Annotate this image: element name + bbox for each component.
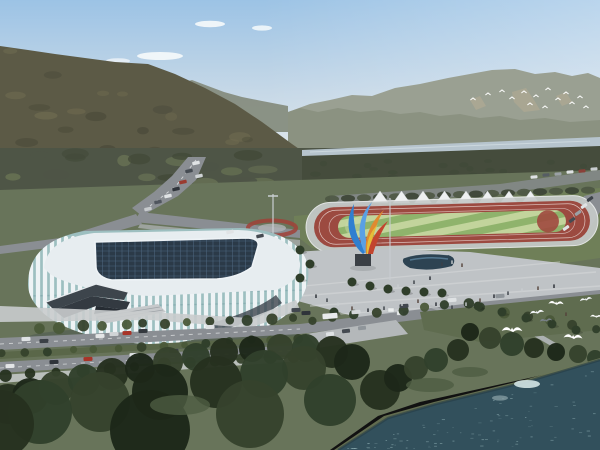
ripple (511, 418, 513, 419)
street-tree (420, 303, 429, 312)
ripple (397, 433, 399, 434)
person (537, 286, 538, 290)
ripple (480, 446, 483, 447)
forest-canopy (569, 345, 587, 363)
orchard-tree (364, 163, 372, 168)
ripple (374, 447, 376, 448)
plaza-tree (522, 314, 531, 323)
orchard-tree (485, 168, 494, 172)
street-tree (89, 345, 97, 353)
ripple (434, 446, 437, 447)
person (337, 302, 338, 306)
plaza-tree (420, 288, 429, 297)
ripple (534, 392, 537, 393)
car (358, 326, 366, 331)
tree-clump (34, 112, 57, 120)
person (565, 312, 566, 316)
ripple (460, 432, 461, 433)
tree-clump (248, 165, 278, 173)
sculpture-pedestal (355, 254, 371, 266)
car (122, 331, 131, 335)
ripple (442, 419, 445, 420)
plaza-tree (438, 289, 447, 298)
ripple (512, 446, 514, 447)
orchard-tree (439, 163, 448, 168)
ripple (498, 418, 501, 419)
plaza-tree (296, 274, 305, 283)
person (521, 288, 522, 292)
stadium-roof-glass (95, 238, 258, 280)
street-tree (183, 318, 191, 326)
backdrop-tree (565, 187, 579, 194)
person (417, 299, 418, 303)
car (21, 337, 30, 341)
ripple (387, 448, 390, 449)
screenshot-root (0, 0, 600, 450)
street-tree (242, 315, 253, 326)
street-tree (137, 342, 147, 352)
car (554, 172, 561, 176)
tree-clump (31, 151, 49, 158)
plaza-tree (474, 302, 483, 311)
ripple (406, 440, 408, 441)
ripple (515, 444, 518, 445)
tree-clump (128, 154, 150, 165)
ripple (452, 441, 454, 442)
forest-clearing (150, 395, 210, 415)
tree-clump (117, 92, 128, 97)
plaza-tree (306, 260, 315, 269)
ripple (550, 440, 553, 441)
ripple (528, 426, 531, 427)
plaza-tree (296, 246, 305, 255)
ripple (531, 425, 533, 426)
ripple (406, 448, 408, 449)
car (542, 173, 549, 177)
ripple (572, 418, 575, 419)
ripple (428, 446, 429, 447)
ripple (588, 436, 591, 437)
stadium-aerial-rendering (0, 0, 600, 450)
ripple (497, 440, 499, 441)
person (326, 298, 327, 302)
orchard-tree (352, 174, 362, 179)
tree-clump (5, 173, 20, 180)
tree-clump (97, 91, 109, 96)
orchard-tree (369, 167, 378, 171)
street-tree (205, 317, 214, 326)
ripple (554, 406, 557, 407)
ripple (551, 384, 554, 385)
forest-canopy (461, 323, 479, 341)
car (326, 332, 334, 337)
ripple (347, 448, 349, 449)
car (495, 294, 504, 299)
forest-canopy (447, 339, 469, 361)
ripple (528, 411, 530, 412)
tree-clump (67, 108, 86, 114)
street-tree (97, 321, 107, 331)
orchard-tree (580, 164, 587, 169)
car (322, 313, 337, 320)
tree-clump (221, 167, 242, 175)
car (530, 175, 537, 179)
street-tree (138, 319, 147, 328)
person (351, 306, 352, 310)
forest-canopy (304, 374, 356, 426)
tree-clump (242, 137, 253, 143)
forest-canopy (547, 343, 565, 361)
street-tree (20, 348, 29, 357)
orchard-tree (449, 170, 459, 175)
person (451, 260, 452, 264)
tree-clump (85, 112, 106, 121)
tree-clump (172, 128, 194, 135)
car (5, 364, 14, 368)
person (451, 305, 452, 309)
person (315, 294, 316, 298)
cloud (195, 21, 225, 27)
street-tree (34, 323, 45, 334)
tree-clump (165, 112, 177, 120)
street-tree (464, 298, 474, 308)
ripple (422, 425, 424, 426)
ripple (386, 440, 387, 441)
orchard-tree (459, 162, 468, 167)
ripple (591, 371, 594, 372)
orchard-tree (547, 160, 555, 165)
forest-canopy (524, 338, 544, 358)
orchard-tree (388, 171, 398, 175)
ripple (525, 417, 526, 418)
tree-clump (44, 71, 62, 79)
forest-canopy (479, 327, 501, 349)
plaza-tree (498, 308, 507, 317)
ripple (440, 443, 442, 444)
tree-clump (3, 48, 17, 54)
ripple (498, 415, 500, 416)
orchard-tree (384, 159, 392, 163)
car (566, 170, 573, 174)
backdrop-tree (533, 188, 547, 195)
tree-clump (28, 104, 50, 111)
street-tree (308, 317, 316, 325)
ripple (493, 400, 495, 401)
plaza-tree (548, 320, 557, 329)
ripple (447, 432, 448, 433)
street-tree (78, 320, 90, 332)
water-shine-small (492, 395, 508, 400)
ripple (354, 448, 356, 449)
tree-clump (137, 127, 149, 134)
ripple (573, 405, 576, 406)
ripple (391, 444, 393, 445)
street-tree (70, 346, 77, 353)
street-tree (289, 314, 297, 322)
ripple (571, 429, 573, 430)
street-tree (53, 322, 65, 334)
street-tree (160, 319, 170, 329)
forest-canopy (500, 332, 524, 356)
person (383, 306, 384, 310)
ripple (478, 422, 481, 423)
person (429, 276, 430, 280)
orchard-tree (499, 169, 507, 174)
car (399, 304, 408, 309)
tree-clump (65, 153, 86, 161)
orchard-tree (310, 171, 321, 176)
ripple (413, 448, 415, 449)
tree-clump (138, 174, 155, 182)
street-tree (266, 314, 277, 325)
ripple (497, 441, 499, 442)
ripple (452, 427, 454, 428)
ripple (493, 431, 495, 432)
ripple (374, 443, 377, 444)
orchard-tree (466, 166, 473, 171)
car (49, 360, 58, 364)
person (479, 298, 480, 302)
car (590, 167, 597, 171)
person (493, 294, 494, 298)
ripple (399, 441, 402, 442)
forest-clearing (406, 378, 454, 392)
car (351, 310, 360, 315)
ripple (437, 423, 440, 424)
water-shine (514, 380, 540, 388)
cloud (137, 52, 183, 60)
ripple (471, 434, 474, 435)
car (301, 311, 310, 315)
ripple (490, 421, 493, 422)
cloud (252, 25, 272, 30)
person (441, 262, 442, 266)
plaza-tree (402, 287, 411, 296)
ripple (470, 438, 473, 439)
orchard-tree (320, 161, 327, 167)
ripple (351, 448, 353, 449)
ripple (394, 445, 396, 446)
ripple (572, 402, 575, 403)
person (413, 280, 414, 284)
ripple (550, 426, 553, 427)
car (39, 339, 48, 343)
ripple (485, 439, 488, 440)
person (553, 284, 554, 288)
person (461, 263, 462, 267)
ripple (393, 434, 394, 435)
ripple (530, 437, 532, 438)
car (95, 334, 104, 338)
ripple (530, 406, 532, 407)
kiosk (388, 308, 394, 312)
car (83, 357, 92, 361)
ripple (587, 431, 590, 432)
ripple (529, 420, 532, 421)
ripple (428, 447, 431, 448)
ripple (516, 441, 518, 442)
car (578, 169, 585, 173)
street-tree (43, 347, 52, 356)
ripple (437, 430, 438, 431)
ripple (520, 437, 522, 438)
car (138, 329, 147, 333)
ripple (512, 394, 514, 395)
forest-canopy (424, 348, 448, 372)
plaza-tree (366, 282, 375, 291)
backdrop-tree (549, 188, 563, 195)
ripple (393, 438, 396, 439)
ripple (554, 437, 556, 438)
ripple (367, 447, 370, 448)
street-tree (592, 325, 600, 333)
ripple (426, 441, 429, 442)
ripple (367, 443, 369, 444)
person (465, 302, 466, 306)
car (342, 329, 350, 334)
street-tree (122, 319, 132, 329)
forest-clearing (452, 367, 488, 377)
ripple (478, 435, 481, 436)
street-tree (440, 300, 449, 309)
ripple (433, 434, 435, 435)
street-tree (226, 316, 235, 325)
car (205, 325, 214, 329)
car (291, 308, 300, 312)
backdrop-tree (341, 195, 355, 202)
plaza-tree (348, 278, 357, 287)
backdrop-tree (581, 187, 595, 194)
person (401, 302, 402, 306)
street-tree (115, 345, 123, 353)
person (435, 302, 436, 306)
tree-clump (58, 126, 74, 132)
person (367, 308, 368, 312)
ripple (497, 414, 499, 415)
ripple (434, 443, 437, 444)
tree-clump (5, 92, 26, 100)
tree-clump (15, 138, 38, 147)
tree-clump (234, 150, 263, 161)
person (397, 284, 398, 288)
ripple (475, 408, 477, 409)
street-tree (372, 308, 382, 318)
tree-clump (43, 169, 70, 179)
ripple (579, 432, 582, 433)
ripple (510, 398, 513, 399)
ripple (585, 376, 587, 377)
person (507, 291, 508, 295)
backdrop-tree (357, 194, 371, 201)
street-tree (25, 368, 36, 379)
ripple (499, 403, 501, 404)
backdrop-tree (325, 195, 339, 202)
backdrop-tree (469, 190, 483, 197)
plaza-tree (384, 285, 393, 294)
ripple (390, 447, 392, 448)
car (447, 298, 456, 303)
ripple (482, 439, 484, 440)
plaza-tree (572, 326, 581, 335)
ripple (423, 427, 425, 428)
forest-canopy (216, 380, 284, 448)
ripple (505, 415, 508, 416)
orchard-tree (484, 159, 492, 163)
car (109, 332, 118, 336)
ripple (367, 448, 370, 449)
forest-canopy (334, 344, 370, 380)
ripple (593, 413, 596, 414)
